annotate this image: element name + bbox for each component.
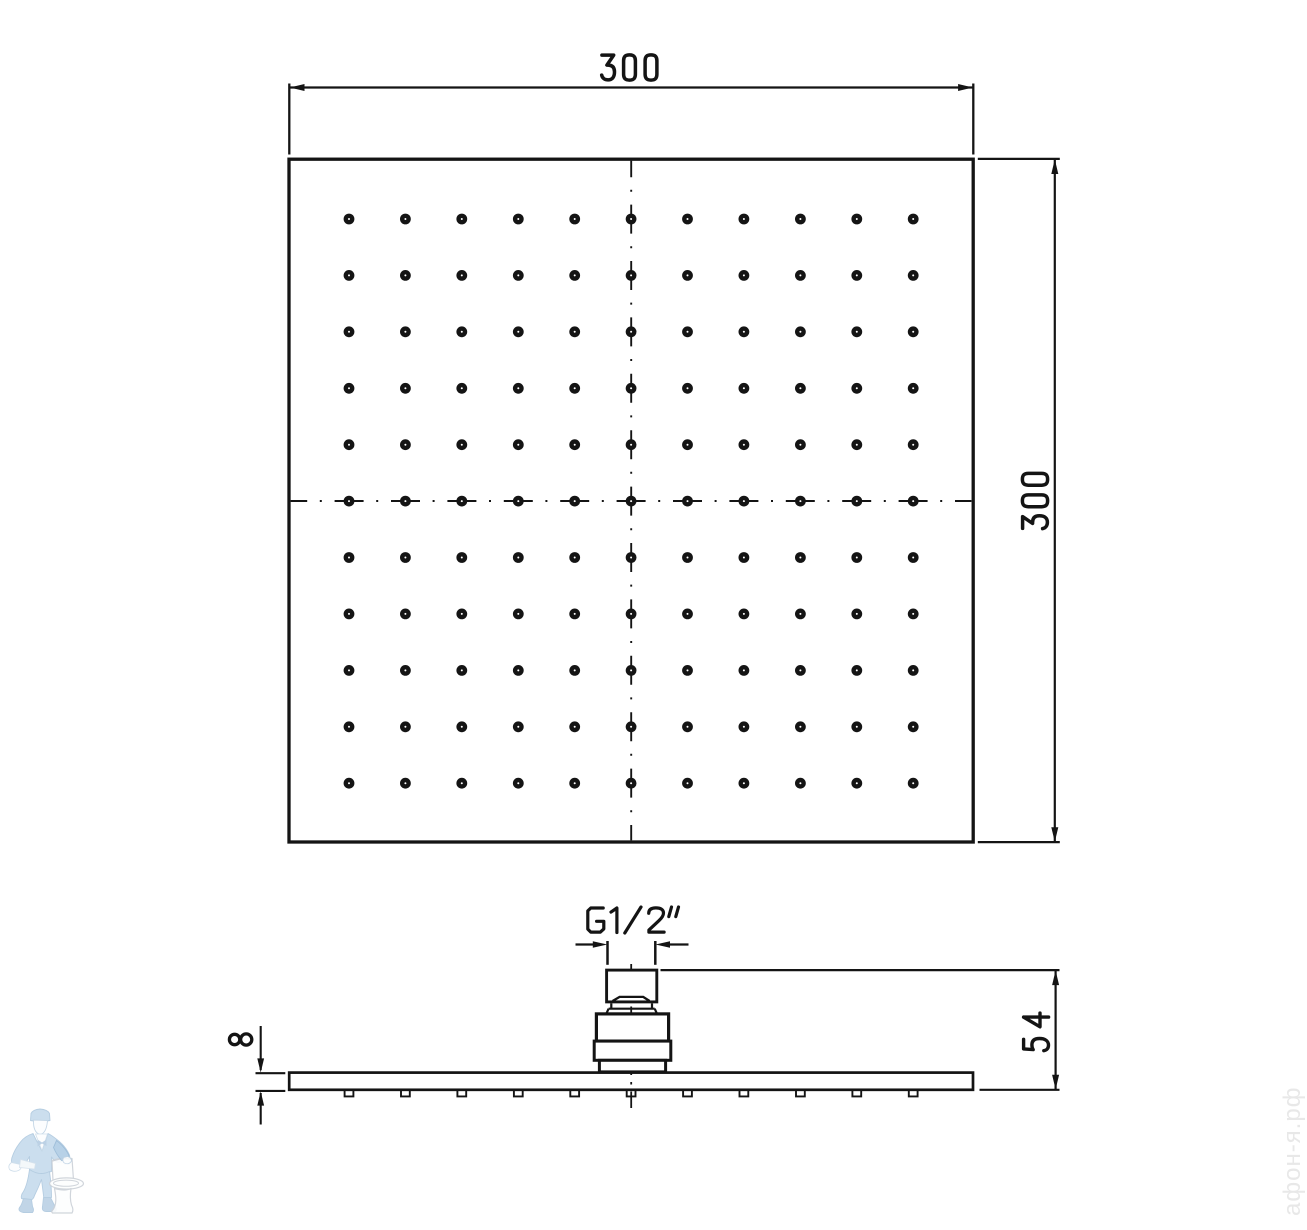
- svg-text:афон-я.рф: афон-я.рф: [1279, 1087, 1306, 1216]
